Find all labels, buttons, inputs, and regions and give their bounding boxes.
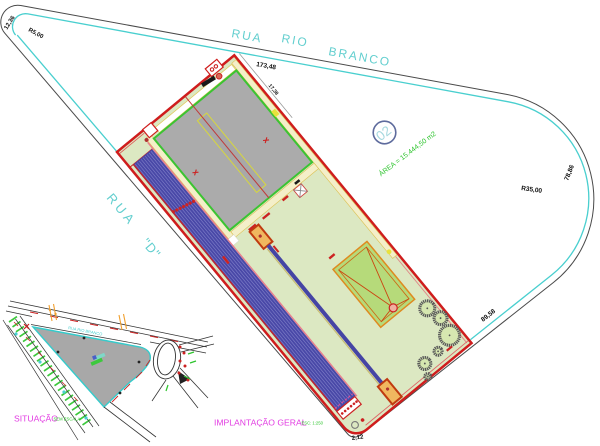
svg-text:IMPLANTAÇÃO GERAL: IMPLANTAÇÃO GERAL — [214, 418, 307, 428]
svg-text:SEM ESCALA: SEM ESCALA — [54, 417, 81, 422]
svg-text:12,36: 12,36 — [4, 15, 17, 31]
svg-text:BRANCO: BRANCO — [327, 44, 392, 69]
svg-text:"D": "D" — [139, 235, 164, 261]
svg-text:R35,00: R35,00 — [521, 185, 543, 195]
svg-text:RUA: RUA — [104, 190, 140, 229]
svg-text:173,48: 173,48 — [256, 61, 277, 72]
svg-text:R5,00: R5,00 — [27, 27, 45, 40]
svg-text:RUA: RUA — [230, 26, 263, 45]
svg-text:89,58: 89,58 — [480, 308, 497, 324]
svg-text:RIO: RIO — [280, 31, 309, 50]
svg-text:ESC: 1:250: ESC: 1:250 — [302, 421, 324, 426]
svg-text:2,12: 2,12 — [351, 434, 364, 442]
svg-text:78,86: 78,86 — [563, 164, 576, 182]
svg-text:SITUAÇÃO: SITUAÇÃO — [14, 414, 58, 424]
